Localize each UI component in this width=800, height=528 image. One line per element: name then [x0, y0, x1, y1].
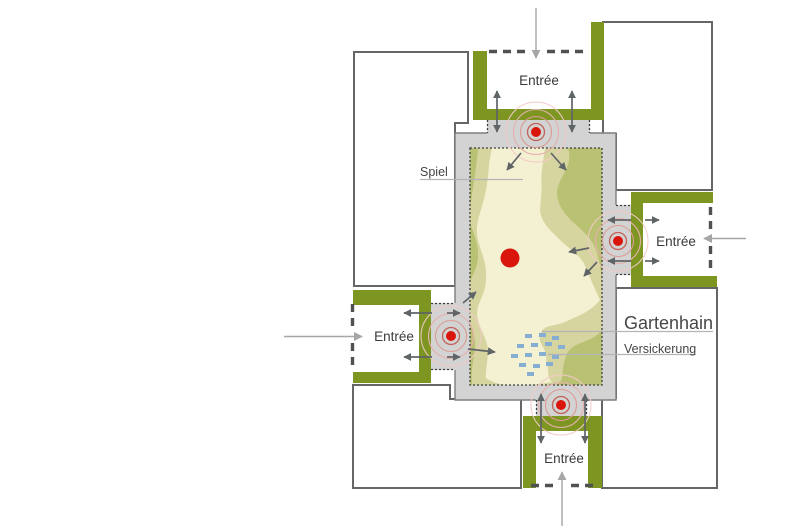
label-entree-left: Entrée: [374, 329, 414, 344]
label-versickerung: Versickerung: [624, 342, 696, 356]
hedge-top-entrance: [473, 22, 604, 120]
site-plan-svg: Entrée Entrée Entrée Entrée Spiel Garten…: [0, 0, 800, 528]
label-spiel: Spiel: [420, 165, 448, 179]
building-top-left: [354, 52, 468, 286]
garden: [465, 148, 602, 385]
garden-center-marker: [501, 249, 520, 268]
label-entree-right: Entrée: [656, 234, 696, 249]
gate-dot-bottom: [556, 400, 566, 410]
label-entree-top: Entrée: [519, 73, 559, 88]
site-plan: Entrée Entrée Entrée Entrée Spiel Garten…: [0, 0, 800, 528]
label-gartenhain: Gartenhain: [624, 313, 713, 333]
gate-dot-left: [446, 331, 456, 341]
label-entree-bottom: Entrée: [544, 451, 584, 466]
building-top-right: [603, 22, 712, 190]
gate-dot-top: [531, 127, 541, 137]
gate-dot-right: [613, 236, 623, 246]
